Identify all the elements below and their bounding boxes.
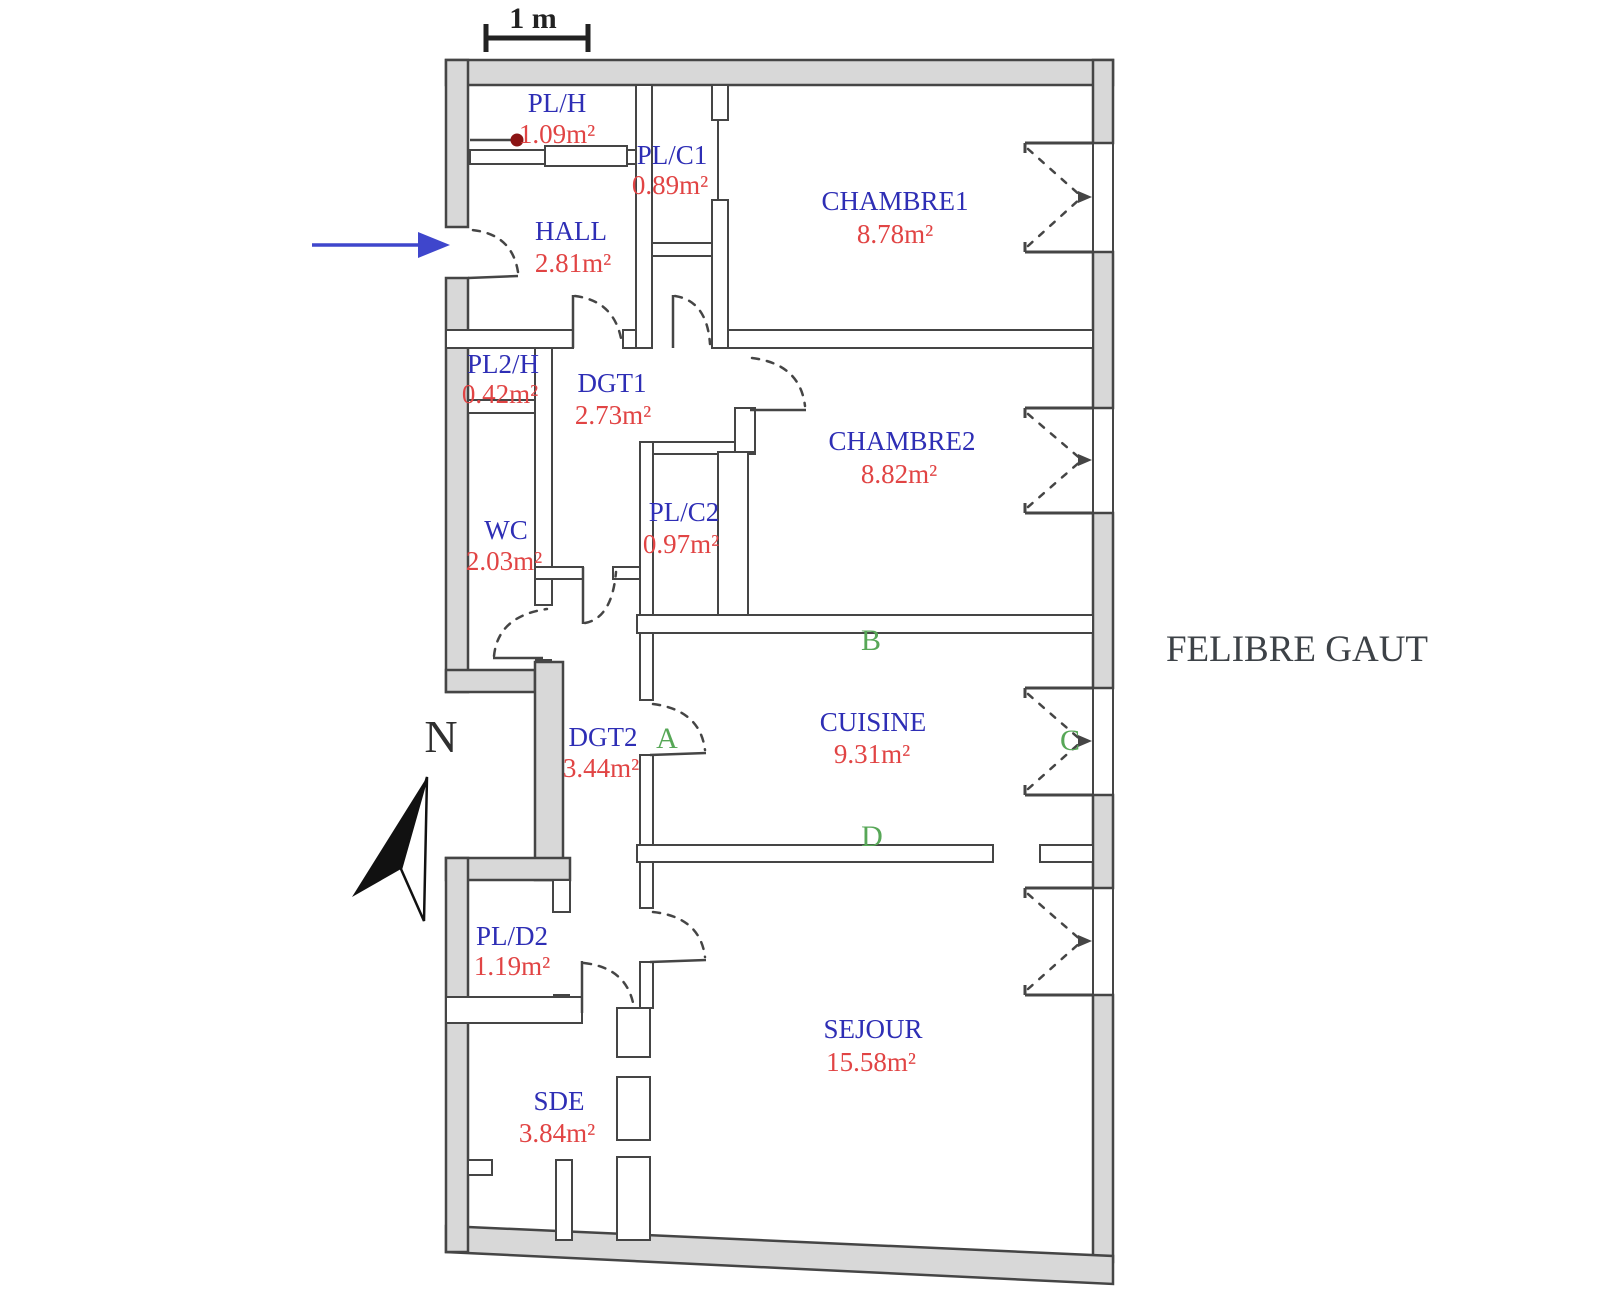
door-wc (493, 609, 547, 658)
room-area: 9.31m² (834, 739, 910, 769)
room-hall: HALL 2.81m² (535, 216, 611, 278)
marker-d: D (861, 820, 883, 853)
marker-c: C (1060, 724, 1080, 757)
room-label: CUISINE (820, 707, 927, 737)
scale-bar: 1 m (486, 2, 588, 52)
room-area: 15.58m² (826, 1047, 916, 1077)
door-sejour (650, 912, 706, 962)
room-label: PL/C2 (649, 497, 720, 527)
room-area: 2.73m² (575, 400, 651, 430)
room-cuisine: CUISINE 9.31m² (820, 707, 927, 769)
room-area: 8.78m² (857, 219, 933, 249)
room-label: PL/H (528, 88, 587, 118)
marker-b: B (861, 624, 881, 657)
room-chambre2: CHAMBRE2 8.82m² (828, 426, 975, 489)
room-label: HALL (535, 216, 607, 246)
room-area: 3.44m² (563, 753, 639, 783)
room-label: SDE (533, 1086, 584, 1116)
building-title: FELIBRE GAUT (1166, 629, 1428, 670)
entrance-arrow-icon (312, 232, 450, 258)
room-wc: WC 2.03m² (466, 515, 542, 576)
room-sde: SDE 3.84m² (519, 1086, 595, 1148)
room-area: 2.81m² (535, 248, 611, 278)
room-label: SEJOUR (823, 1014, 922, 1044)
window-chambre1-icon (1025, 143, 1113, 252)
room-area: 2.03m² (466, 546, 542, 576)
room-label: PL/C1 (637, 140, 708, 170)
window-chambre2-icon (1025, 408, 1113, 513)
room-pl2-h: PL2/H 0.42m² (462, 349, 539, 409)
room-label: DGT2 (569, 722, 638, 752)
room-area: 0.42m² (462, 379, 538, 409)
room-area: 0.89m² (632, 170, 708, 200)
marker-a: A (656, 722, 678, 755)
door-dgt1-dgt2 (583, 567, 616, 624)
door-hall-dgt1 (573, 295, 622, 348)
door-chambre2 (750, 358, 806, 410)
room-sejour: SEJOUR 15.58m² (823, 1014, 922, 1077)
room-area: 1.19m² (474, 951, 550, 981)
room-label: PL2/H (467, 349, 539, 379)
room-area: 3.84m² (519, 1118, 595, 1148)
room-pl-c1: PL/C1 0.89m² (632, 140, 708, 200)
room-area: 1.09m² (519, 119, 595, 149)
door-sde (582, 961, 634, 1013)
room-area: 0.97m² (643, 529, 719, 559)
room-area: 8.82m² (861, 459, 937, 489)
room-pl-c2: PL/C2 0.97m² (643, 497, 719, 559)
door-entrance (468, 230, 518, 278)
room-chambre1: CHAMBRE1 8.78m² (821, 186, 968, 249)
room-label: DGT1 (578, 368, 647, 398)
scale-bar-label: 1 m (509, 2, 557, 35)
compass-north-label: N (424, 711, 457, 762)
compass: N (352, 711, 458, 921)
room-label: PL/D2 (476, 921, 548, 951)
room-pl-h: PL/H 1.09m² (519, 88, 595, 149)
room-dgt2: DGT2 3.44m² (563, 722, 639, 783)
room-label: WC (484, 515, 528, 545)
room-label: CHAMBRE2 (828, 426, 975, 456)
room-label: CHAMBRE1 (821, 186, 968, 216)
floor-plan-page: 1 m (0, 0, 1600, 1307)
floor-plan: 1 m (0, 0, 1600, 1307)
room-pl-d2: PL/D2 1.19m² (474, 921, 550, 981)
room-dgt1: DGT1 2.73m² (575, 368, 651, 430)
door-chambre1 (673, 295, 710, 348)
window-sejour-icon (1025, 888, 1113, 995)
